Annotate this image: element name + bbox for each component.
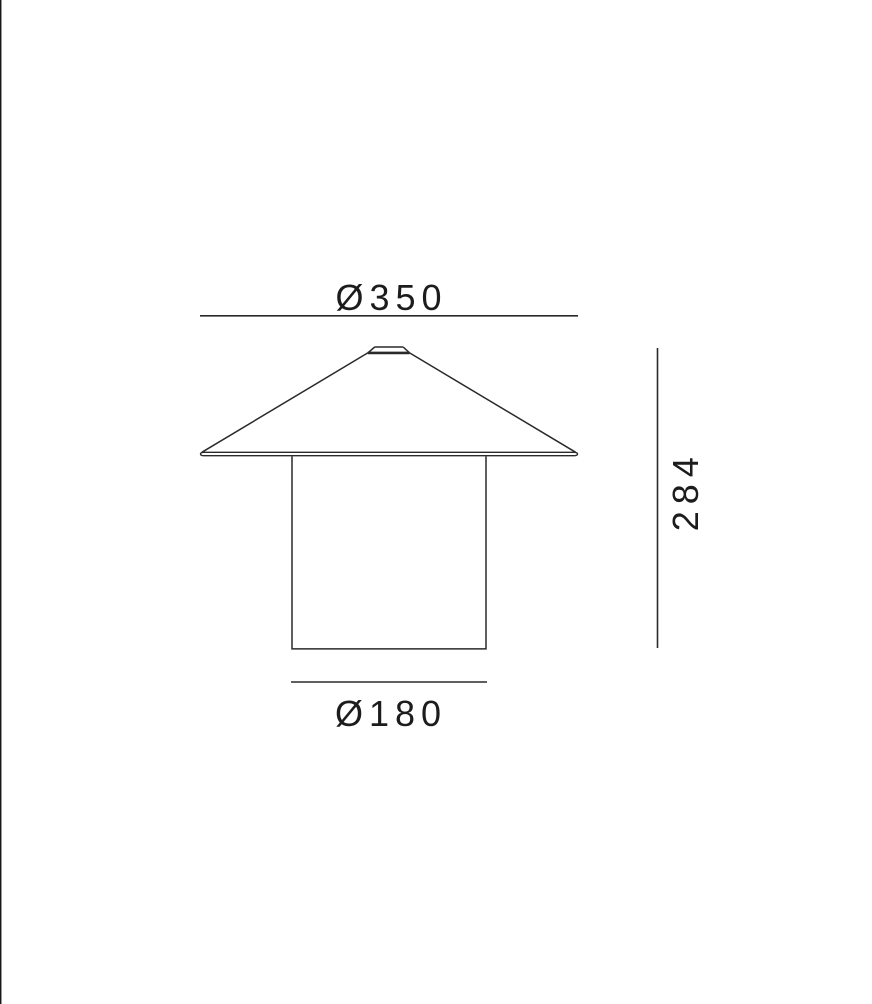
svg-text:284: 284 xyxy=(665,450,706,531)
svg-text:Ø180: Ø180 xyxy=(335,693,447,734)
svg-text:Ø350: Ø350 xyxy=(335,277,447,318)
